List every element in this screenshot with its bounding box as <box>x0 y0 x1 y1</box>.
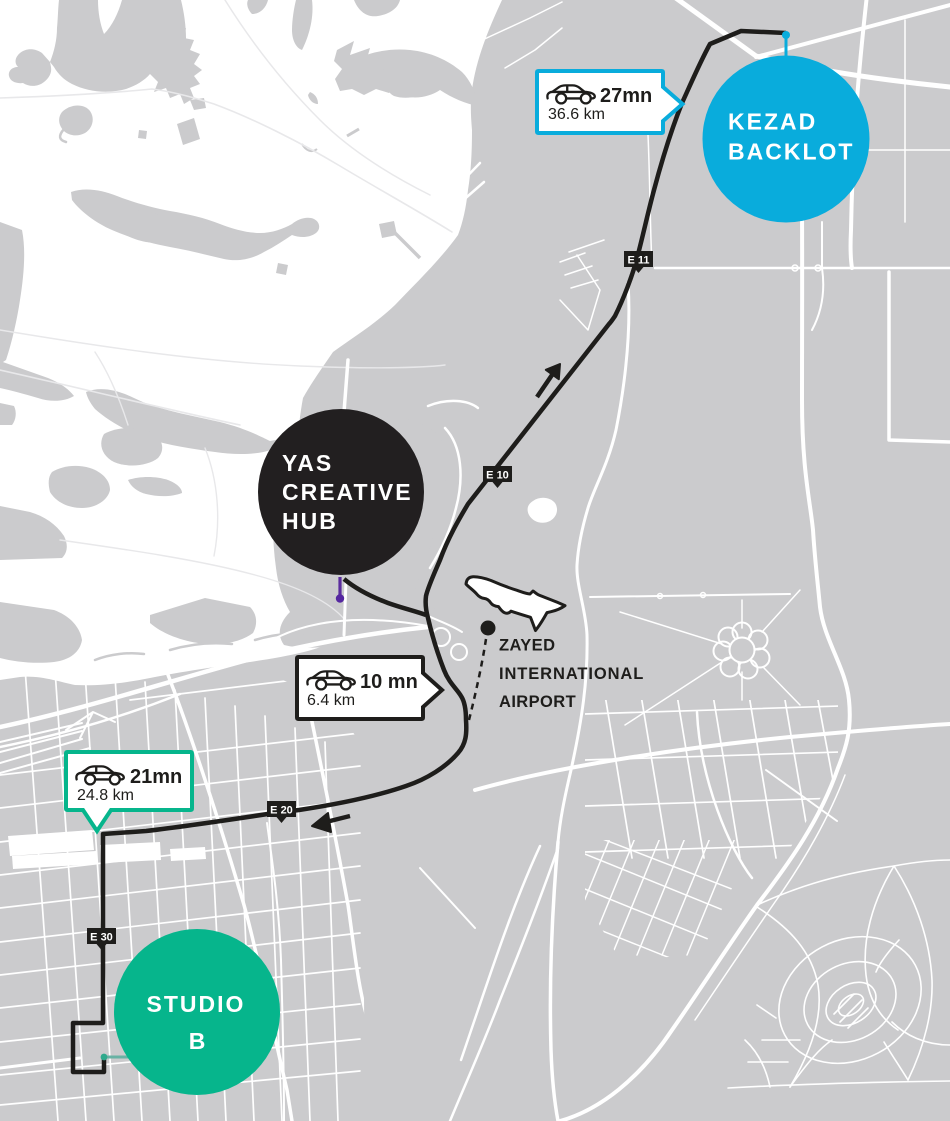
svg-text:INTERNATIONAL: INTERNATIONAL <box>499 665 644 683</box>
svg-text:24.8 km: 24.8 km <box>77 787 134 804</box>
svg-text:10 mn: 10 mn <box>360 671 418 693</box>
svg-text:6.4 km: 6.4 km <box>307 692 355 709</box>
svg-text:E 11: E 11 <box>627 255 649 267</box>
svg-text:STUDIO: STUDIO <box>147 991 246 1017</box>
svg-text:E 10: E 10 <box>486 470 509 482</box>
svg-text:E 30: E 30 <box>90 932 113 944</box>
svg-text:36.6 km: 36.6 km <box>548 106 605 123</box>
svg-text:KEZAD: KEZAD <box>728 109 817 135</box>
svg-text:ZAYED: ZAYED <box>499 637 555 655</box>
svg-text:BACKLOT: BACKLOT <box>728 139 854 165</box>
svg-text:27mn: 27mn <box>600 85 652 107</box>
svg-text:B: B <box>189 1028 206 1054</box>
svg-text:21mn: 21mn <box>130 766 182 788</box>
svg-text:YAS: YAS <box>282 450 333 476</box>
svg-text:AIRPORT: AIRPORT <box>499 693 576 711</box>
svg-text:E 20: E 20 <box>270 805 293 817</box>
svg-text:CREATIVE: CREATIVE <box>282 479 413 505</box>
svg-text:HUB: HUB <box>282 508 338 534</box>
